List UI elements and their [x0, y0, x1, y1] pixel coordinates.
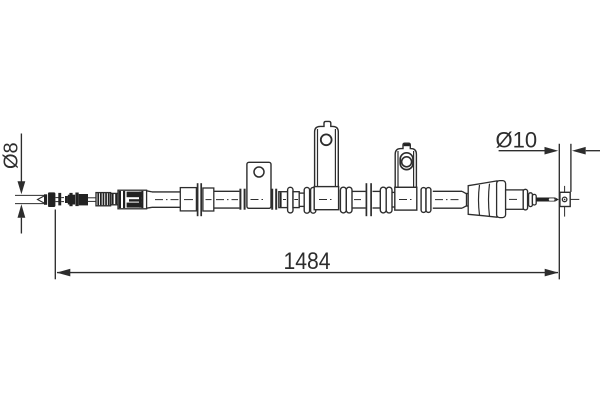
svg-text:1484: 1484: [284, 248, 331, 275]
svg-text:Ø8: Ø8: [1, 142, 23, 169]
svg-text:Ø10: Ø10: [496, 128, 538, 153]
